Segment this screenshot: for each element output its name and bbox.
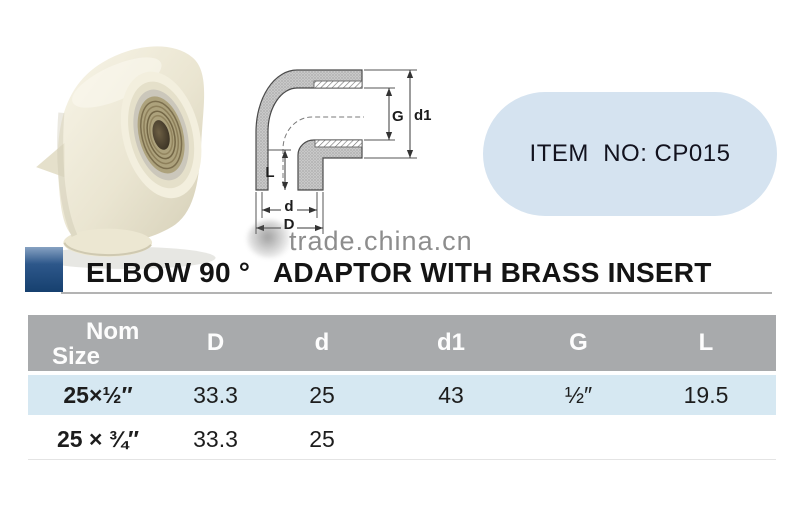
- table-header-row: Nom Size D d d1 G L: [28, 315, 776, 371]
- col-header-L: L: [636, 315, 776, 371]
- col-header-nom-size: Nom Size: [28, 315, 168, 371]
- thread-band-bottom: [315, 140, 362, 147]
- cell-L: [636, 419, 776, 460]
- cell-D: 33.3: [168, 419, 263, 460]
- thread-band-top: [314, 81, 362, 88]
- dim-label-d1: d1: [414, 107, 432, 124]
- col-header-d: d: [263, 315, 381, 371]
- item-no-badge: ITEM NO: CP015: [483, 92, 777, 216]
- cell-d: 25: [263, 375, 381, 415]
- cell-L: 19.5: [636, 375, 776, 415]
- fitting-foot: [63, 229, 152, 257]
- product-photo-elbow-fitting: [28, 12, 260, 274]
- dim-label-g: G: [392, 108, 404, 125]
- cell-d1: 43: [381, 375, 521, 415]
- cell-G: ½″: [521, 375, 636, 415]
- table-row: 25 × ¾″ 33.3 25: [28, 419, 776, 460]
- spec-table: Nom Size D d d1 G L 25×½″ 33.3 25 43 ½″ …: [28, 311, 776, 464]
- elbow-inner-wall: [298, 140, 362, 190]
- cell-G: [521, 419, 636, 460]
- item-no-text: ITEM NO: CP015: [530, 140, 731, 168]
- cell-d1: [381, 419, 521, 460]
- product-spec-sheet: d1 G L d D ITEM NO: CP015 trade.china.cn…: [0, 0, 800, 510]
- page-title: ELBOW 90 ° ADAPTOR WITH BRASS INSERT: [86, 257, 712, 289]
- cell-D: 33.3: [168, 375, 263, 415]
- title-marker-square: [25, 247, 63, 292]
- cell-nom: 25 × ¾″: [28, 419, 168, 460]
- cell-d: 25: [263, 419, 381, 460]
- title-underline: [61, 292, 772, 294]
- cell-nom: 25×½″: [28, 375, 168, 415]
- col-header-d1: d1: [381, 315, 521, 371]
- dim-label-d: d: [284, 198, 293, 215]
- col-header-G: G: [521, 315, 636, 371]
- watermark-logo-blob: [247, 220, 293, 258]
- dim-label-l: L: [265, 164, 274, 181]
- col-header-D: D: [168, 315, 263, 371]
- dimension-diagram: d1 G L d D: [245, 50, 440, 248]
- table-row: 25×½″ 33.3 25 43 ½″ 19.5: [28, 375, 776, 415]
- watermark-text: trade.china.cn: [289, 226, 473, 257]
